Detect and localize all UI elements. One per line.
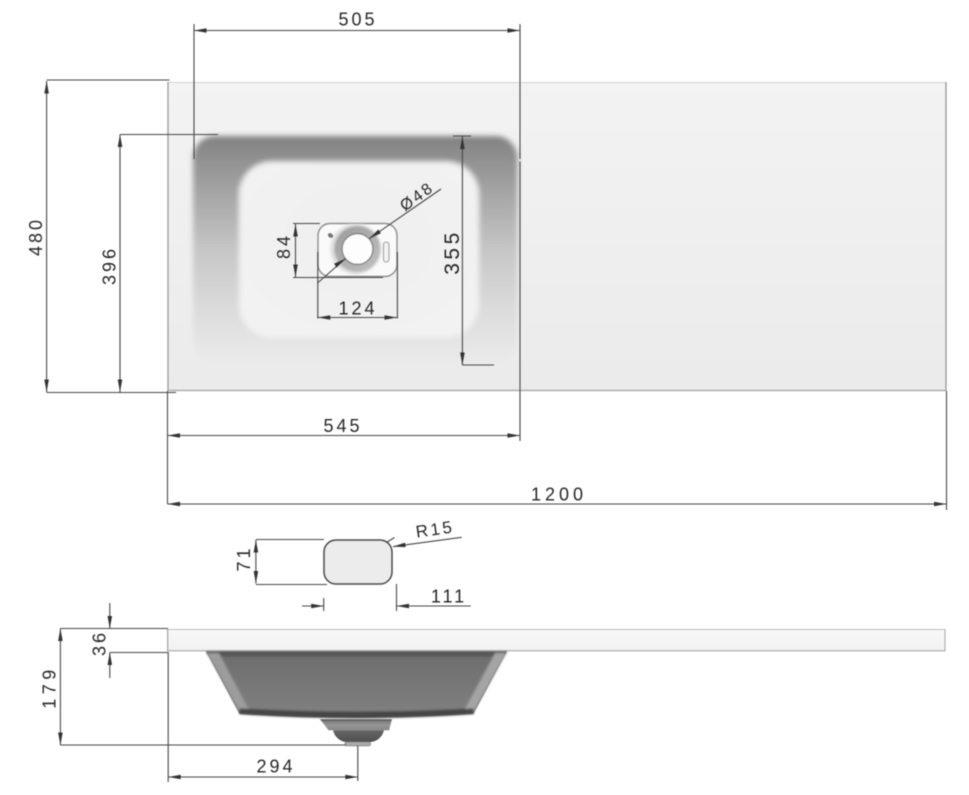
svg-text:111: 111 — [431, 587, 467, 607]
svg-text:36: 36 — [90, 630, 110, 656]
svg-text:480: 480 — [26, 217, 46, 256]
svg-text:396: 396 — [100, 246, 120, 285]
svg-text:R15: R15 — [415, 517, 456, 541]
svg-text:1200: 1200 — [531, 485, 587, 505]
svg-text:124: 124 — [338, 299, 377, 319]
svg-text:355: 355 — [441, 229, 464, 275]
svg-text:545: 545 — [323, 416, 362, 436]
svg-text:505: 505 — [338, 10, 377, 30]
svg-text:84: 84 — [274, 233, 294, 259]
svg-text:71: 71 — [234, 545, 254, 571]
svg-text:179: 179 — [40, 665, 60, 709]
svg-text:294: 294 — [256, 757, 295, 777]
